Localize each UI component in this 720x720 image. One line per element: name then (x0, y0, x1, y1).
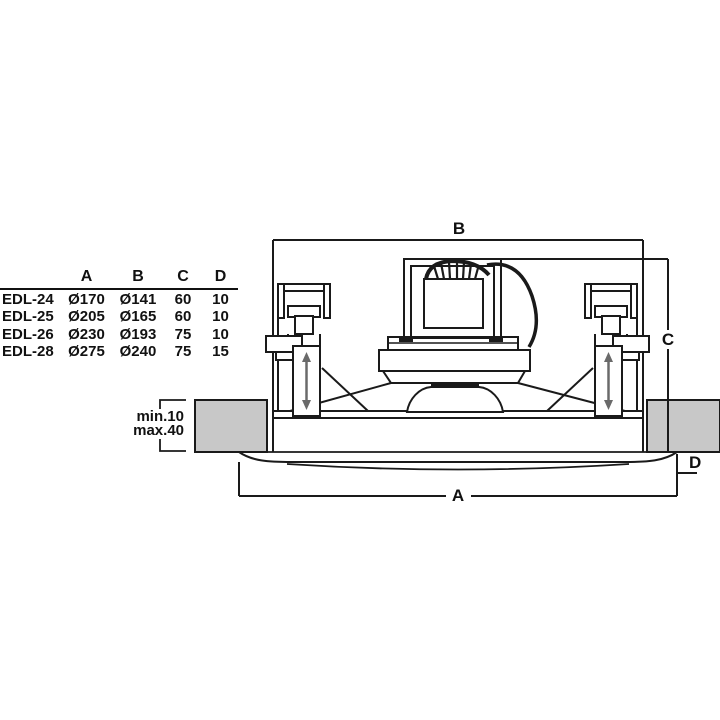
spec-header-b: B (113, 268, 163, 286)
value-a: Ø170 (60, 291, 113, 308)
value-b: Ø193 (113, 326, 163, 343)
value-a: Ø230 (60, 326, 113, 343)
model-name: EDL-25 (0, 308, 60, 325)
value-c: 60 (163, 291, 203, 308)
value-d: 15 (203, 343, 238, 360)
dim-d-label: D (689, 453, 701, 472)
value-c: 75 (163, 343, 203, 360)
model-name: EDL-28 (0, 343, 60, 360)
value-d: 10 (203, 291, 238, 308)
dust-cap (407, 387, 503, 412)
dim-a-label: A (452, 486, 464, 505)
ceiling-thickness-max: max.40 (104, 424, 184, 438)
speaker-dimension-drawing: B C A D (0, 0, 720, 720)
clamp-leg-outer-right (631, 284, 637, 318)
model-name: EDL-26 (0, 326, 60, 343)
table-row: EDL-28 Ø275 Ø240 75 15 (0, 343, 238, 361)
dim-b-label: B (453, 219, 465, 238)
value-c: 75 (163, 326, 203, 343)
value-d: 10 (203, 326, 238, 343)
value-a: Ø205 (60, 308, 113, 325)
mounting-clamp-left (266, 284, 330, 416)
ceiling-panel-right (647, 400, 720, 452)
clamp-leg-inner-right (585, 284, 591, 318)
spec-header-d: D (203, 268, 238, 286)
spec-header-c: C (163, 268, 203, 286)
ceiling-panel-left (195, 400, 267, 452)
value-c: 60 (163, 308, 203, 325)
front-bezel-face (287, 464, 629, 470)
value-b: Ø165 (113, 308, 163, 325)
spec-table: A B C D EDL-24 Ø170 Ø141 60 10 EDL-25 Ø2… (0, 265, 238, 360)
basket-strut-left (322, 368, 368, 411)
clamp-leg-inner-left (324, 284, 330, 318)
transformer-core (424, 279, 483, 328)
table-row: EDL-26 Ø230 Ø193 75 10 (0, 325, 238, 343)
clamp-leg-outer-left (278, 284, 284, 318)
value-b: Ø141 (113, 291, 163, 308)
clamp-top-bar-right (585, 284, 637, 291)
table-row: EDL-25 Ø205 Ø165 60 10 (0, 308, 238, 326)
line-transformer (404, 259, 536, 347)
table-row: EDL-24 Ø170 Ø141 60 10 (0, 290, 238, 308)
dim-c-label: C (662, 330, 674, 349)
model-name: EDL-24 (0, 291, 60, 308)
magnet-bottom-plate (383, 371, 525, 383)
spec-header-a: A (60, 268, 113, 286)
clamp-screw-head-left (295, 316, 313, 334)
value-b: Ø240 (113, 343, 163, 360)
clamp-screw-head-right (602, 316, 620, 334)
basket-strut-right (547, 368, 593, 411)
ceiling-thickness-note: min.10 max.40 (104, 409, 184, 439)
magnet-block (379, 350, 530, 371)
spec-table-header-row: A B C D (0, 265, 238, 290)
value-d: 10 (203, 308, 238, 325)
page: B C A D A B C D EDL-24 Ø170 Ø141 60 10 E… (0, 0, 720, 720)
mounting-clamp-right (585, 284, 649, 416)
value-a: Ø275 (60, 343, 113, 360)
front-bezel-outline (239, 452, 677, 462)
clamp-top-bar-left (278, 284, 330, 291)
